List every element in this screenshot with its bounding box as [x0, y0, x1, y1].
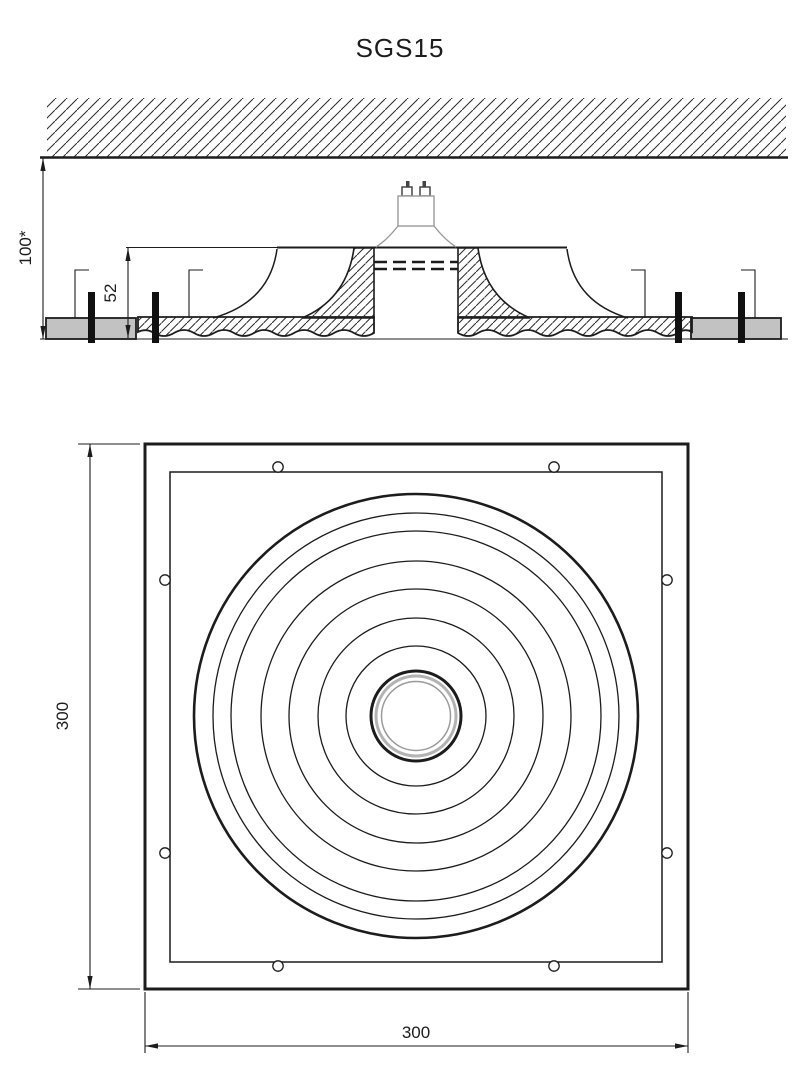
fixing-screw-3: [675, 292, 682, 343]
dimension-label-100: 100*: [16, 230, 35, 265]
fixing-screw-4: [738, 292, 745, 343]
dimension-plan-height: 300: [53, 444, 140, 989]
ripple-ring: [346, 646, 486, 786]
gu10-lamp: [376, 181, 456, 247]
technical-drawing-canvas: SGS15: [0, 0, 800, 1075]
screw-hole-right-upper: [662, 575, 672, 585]
screw-hole-top-left: [273, 462, 283, 472]
ripple-ring: [318, 618, 514, 814]
bowl-curve-right: [567, 249, 628, 318]
lamp-body: [398, 196, 434, 226]
spring-clip-3: [631, 270, 645, 318]
lamp-terminal-left: [402, 187, 412, 196]
lamp-cone-left: [376, 226, 398, 247]
section-view: 100* 52: [16, 98, 788, 343]
dimension-label-300-horizontal: 300: [402, 1023, 430, 1042]
drawing-sheet: SGS15: [0, 0, 800, 1075]
lamp-pin-left: [406, 181, 410, 187]
screw-hole-right-lower: [662, 848, 672, 858]
ripple-ring: [213, 513, 619, 919]
lamp-hole-edge: [371, 671, 461, 761]
spring-clip-1: [75, 270, 89, 318]
plasterboard-right: [691, 318, 781, 339]
plan-view: 300 300: [53, 444, 688, 1053]
ripple-rings: [194, 494, 638, 938]
page-title: SGS15: [356, 33, 445, 63]
ripple-ring: [261, 561, 571, 871]
fixture-flange-right: [458, 317, 692, 336]
lamp-cone-right: [434, 226, 456, 247]
ripple-ring: [231, 531, 601, 901]
inner-frame: [170, 472, 662, 962]
screw-hole-left-upper: [160, 575, 170, 585]
ceiling-slab: [40, 98, 788, 158]
dimension-label-52: 52: [101, 284, 120, 303]
lamp-trim-inner-ring: [382, 682, 451, 751]
fixture-flange-left: [138, 317, 374, 336]
outer-frame: [145, 444, 688, 989]
lamp-housing-wall-right: [458, 248, 530, 318]
lamp-trim-ring: [376, 676, 456, 756]
lamp-housing-wall-left: [302, 248, 374, 318]
bowl-curve-left: [213, 249, 277, 318]
screw-hole-bottom-right: [549, 961, 559, 971]
screw-hole-left-lower: [160, 848, 170, 858]
lamp-hole: [371, 671, 461, 761]
screw-hole-top-right: [549, 462, 559, 472]
dimension-label-300-vertical: 300: [53, 702, 72, 730]
lamp-pin-right: [423, 181, 427, 187]
dimension-overall-height: 100*: [16, 158, 46, 339]
fixing-screw-1: [88, 292, 95, 343]
ripple-ring: [289, 589, 543, 843]
dimension-plan-width: 300: [145, 992, 688, 1053]
screw-holes: [160, 462, 672, 971]
screw-hole-bottom-left: [273, 961, 283, 971]
lamp-terminal-right: [420, 187, 430, 196]
spring-clip-2: [189, 270, 203, 318]
fixing-screw-2: [152, 292, 159, 343]
